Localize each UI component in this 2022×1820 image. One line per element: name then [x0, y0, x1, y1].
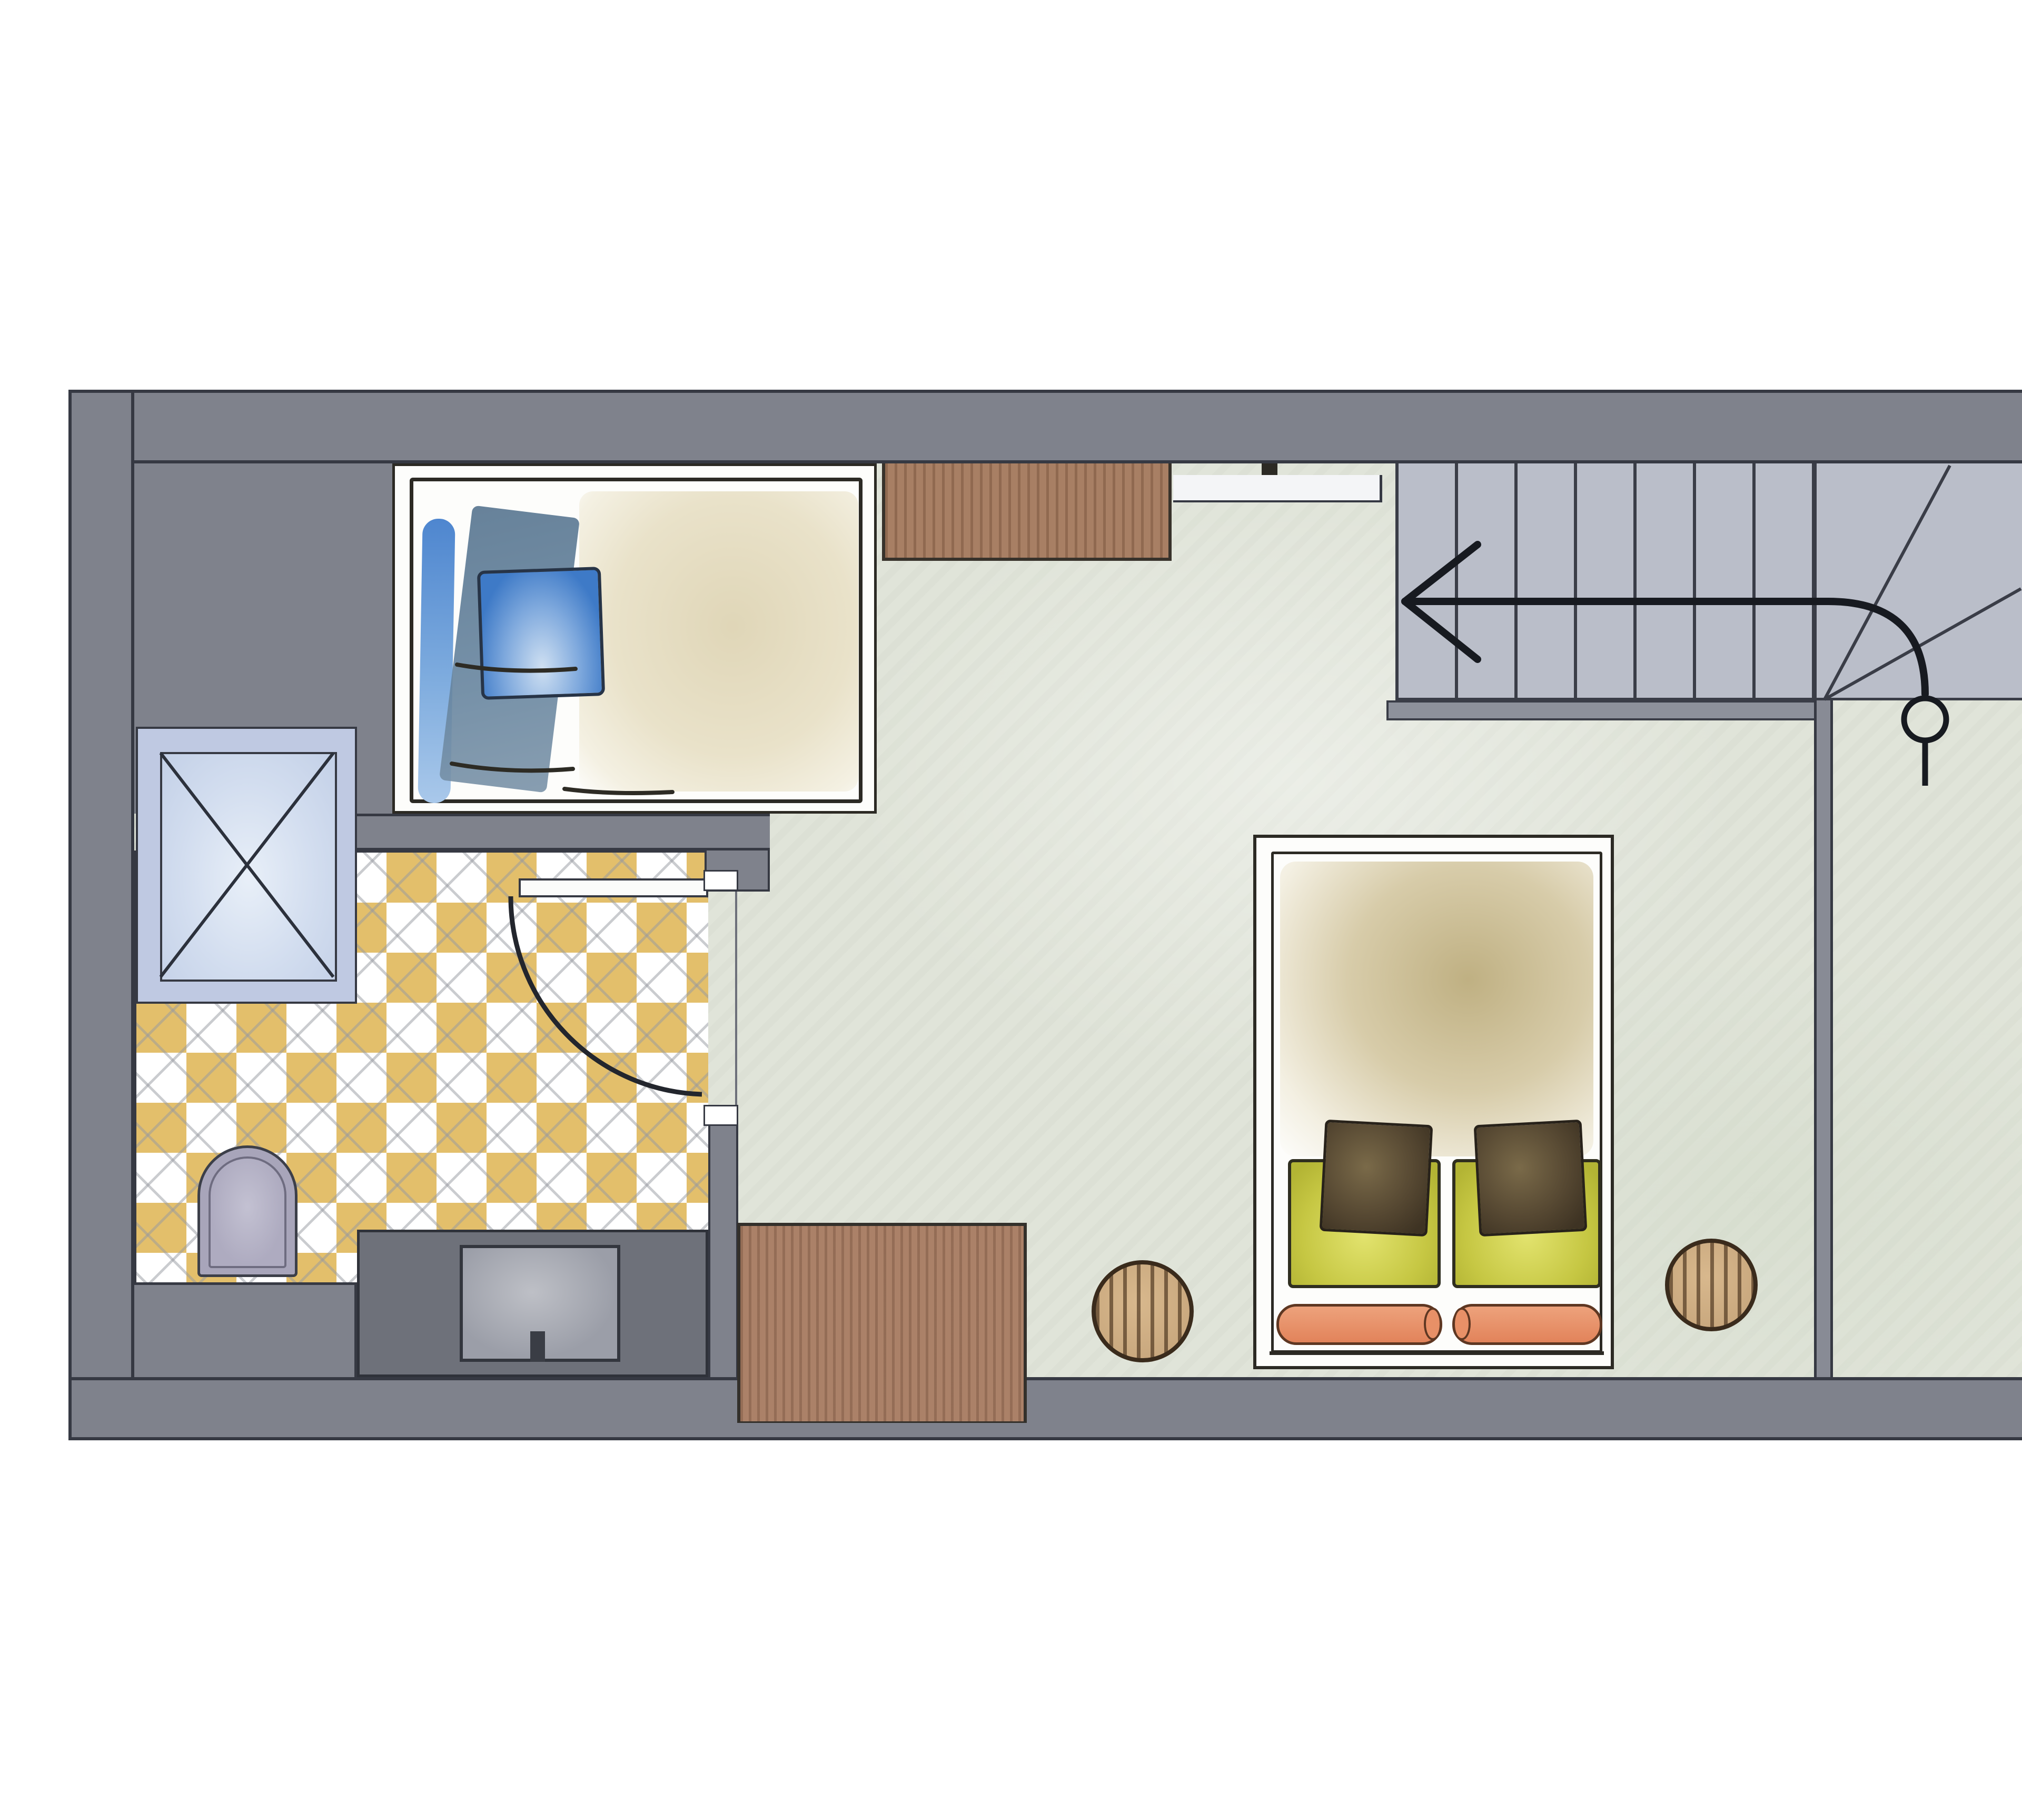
staircase-straight-run — [1395, 463, 1814, 700]
sleeping-alcove — [392, 463, 877, 814]
bolster-endcap-icon — [1424, 1308, 1442, 1340]
single-bed-blue-pillow — [477, 567, 605, 700]
window-niche — [1173, 475, 1382, 502]
wall-bathroom-lower — [708, 1105, 738, 1379]
wall-alcove-band — [354, 814, 770, 850]
double-bed-foot-line — [1270, 1351, 1604, 1355]
stool-left — [1092, 1260, 1194, 1362]
wall-under-stairs — [1386, 700, 1825, 720]
double-bed-blanket — [1280, 862, 1593, 1156]
shower-tray — [136, 727, 357, 1004]
toilet-bowl-line — [209, 1156, 286, 1268]
stool-right — [1665, 1239, 1758, 1331]
bathroom-door-leaf — [519, 878, 708, 897]
double-bed — [1253, 835, 1614, 1369]
toilet — [197, 1145, 298, 1277]
sideboard-bench — [737, 1223, 1027, 1423]
door-jamb-bottom — [703, 1105, 738, 1126]
faucet-icon — [530, 1331, 545, 1362]
double-bed-bolster-left — [1276, 1304, 1442, 1345]
wall-interior-vertical — [1814, 700, 1833, 1379]
wall-left — [71, 392, 134, 1438]
wardrobe-cabinet — [882, 463, 1172, 561]
double-bed-cushion-right — [1474, 1120, 1588, 1237]
sink-basin — [460, 1245, 620, 1362]
floor-adjacent-room — [1836, 700, 2022, 1377]
bolster-endcap-icon — [1453, 1308, 1471, 1340]
vanity-counter — [357, 1230, 708, 1377]
wall-block-bottom-left — [134, 1282, 357, 1379]
wall-bottom — [71, 1377, 2022, 1438]
staircase-winders — [1814, 463, 2022, 700]
door-jamb-top — [703, 870, 738, 891]
floor-plan-canvas — [0, 0, 2022, 1820]
double-bed-bolster-right — [1452, 1304, 1602, 1345]
wall-top — [71, 392, 2022, 463]
single-bed-duvet — [579, 491, 858, 792]
doorway-threshold-line — [735, 891, 737, 1106]
double-bed-cushion-left — [1320, 1120, 1433, 1237]
shower-basin — [160, 752, 337, 982]
